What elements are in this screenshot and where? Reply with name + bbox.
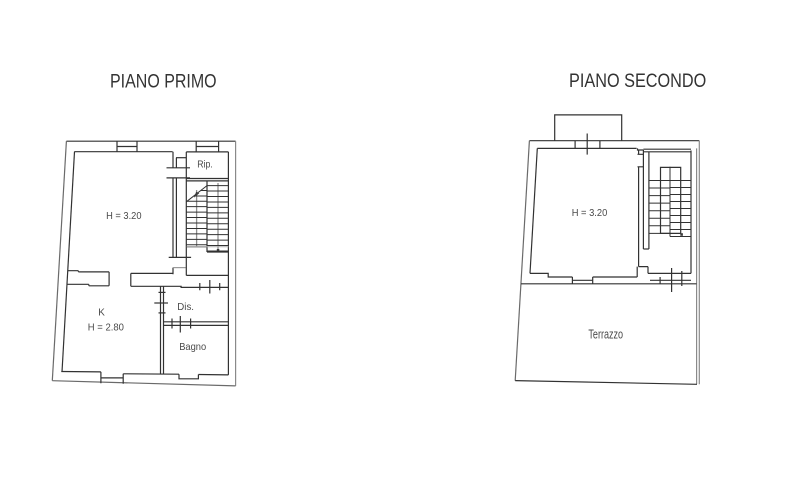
svg-text:PIANO PRIMO: PIANO PRIMO [110, 71, 217, 92]
svg-text:Dis.: Dis. [177, 301, 194, 313]
svg-text:H = 2.80: H = 2.80 [88, 322, 124, 334]
svg-text:Terrazzo: Terrazzo [588, 326, 623, 341]
svg-text:H = 3.20: H = 3.20 [106, 210, 142, 222]
svg-text:Bagno: Bagno [179, 341, 206, 353]
svg-text:K: K [98, 306, 105, 318]
svg-text:Rip.: Rip. [197, 159, 213, 171]
svg-text:PIANO SECONDO: PIANO SECONDO [569, 71, 706, 92]
svg-text:H = 3.20: H = 3.20 [572, 207, 608, 219]
